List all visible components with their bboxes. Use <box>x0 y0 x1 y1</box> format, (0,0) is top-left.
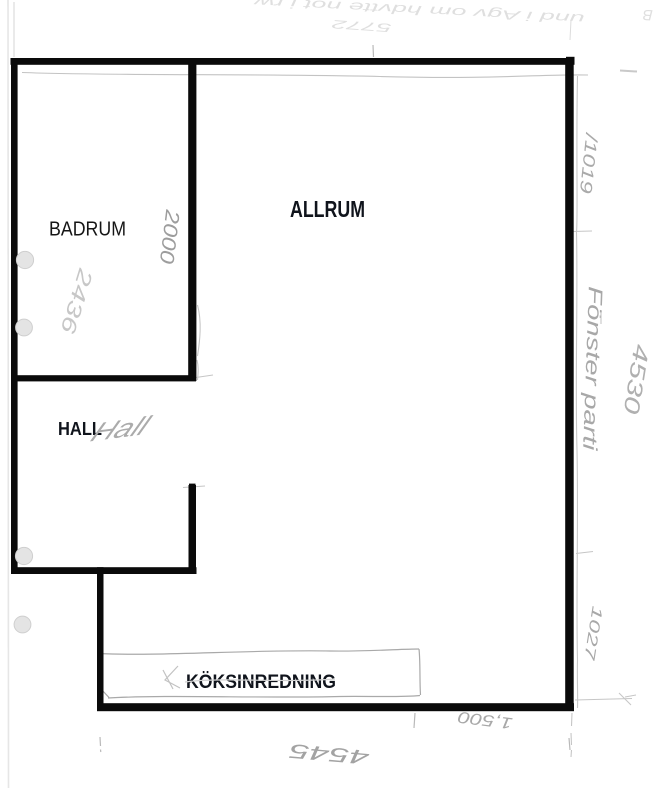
svg-text:BADRUM: BADRUM <box>49 219 126 241</box>
svg-text:KÖKSINREDNING: KÖKSINREDNING <box>186 672 336 693</box>
svg-text:ALLRUM: ALLRUM <box>290 196 365 222</box>
svg-text:B: B <box>642 6 653 24</box>
